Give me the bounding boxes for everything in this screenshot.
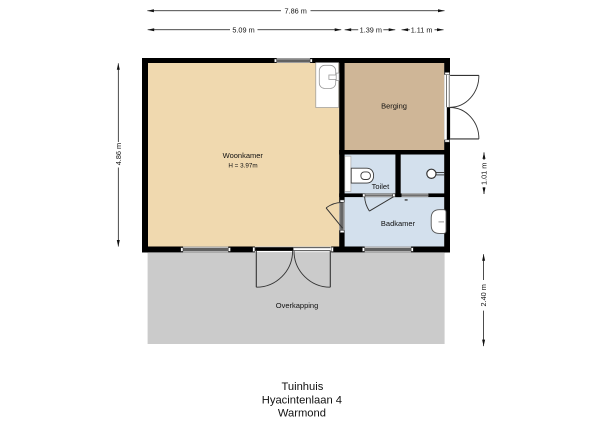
svg-text:Toilet: Toilet (372, 182, 390, 191)
svg-text:Tuinhuis: Tuinhuis (281, 381, 323, 393)
svg-text:2.40 m: 2.40 m (479, 284, 488, 306)
svg-text:7.86 m: 7.86 m (285, 6, 307, 15)
svg-text:Berging: Berging (381, 101, 407, 110)
svg-text:Overkapping: Overkapping (276, 301, 319, 310)
svg-text:Badkamer: Badkamer (381, 219, 416, 228)
svg-text:1.39 m: 1.39 m (360, 26, 382, 35)
svg-text:4.86 m: 4.86 m (114, 143, 123, 165)
svg-text:Hyacintenlaan 4: Hyacintenlaan 4 (262, 394, 342, 406)
svg-text:Woonkamer: Woonkamer (223, 151, 264, 160)
svg-text:1.11 m: 1.11 m (411, 26, 433, 35)
svg-text:1.01 m: 1.01 m (480, 163, 489, 185)
svg-text:5.09 m: 5.09 m (232, 26, 254, 35)
svg-text:Warmond: Warmond (278, 408, 326, 420)
svg-text:H = 3.97m: H = 3.97m (228, 162, 257, 169)
